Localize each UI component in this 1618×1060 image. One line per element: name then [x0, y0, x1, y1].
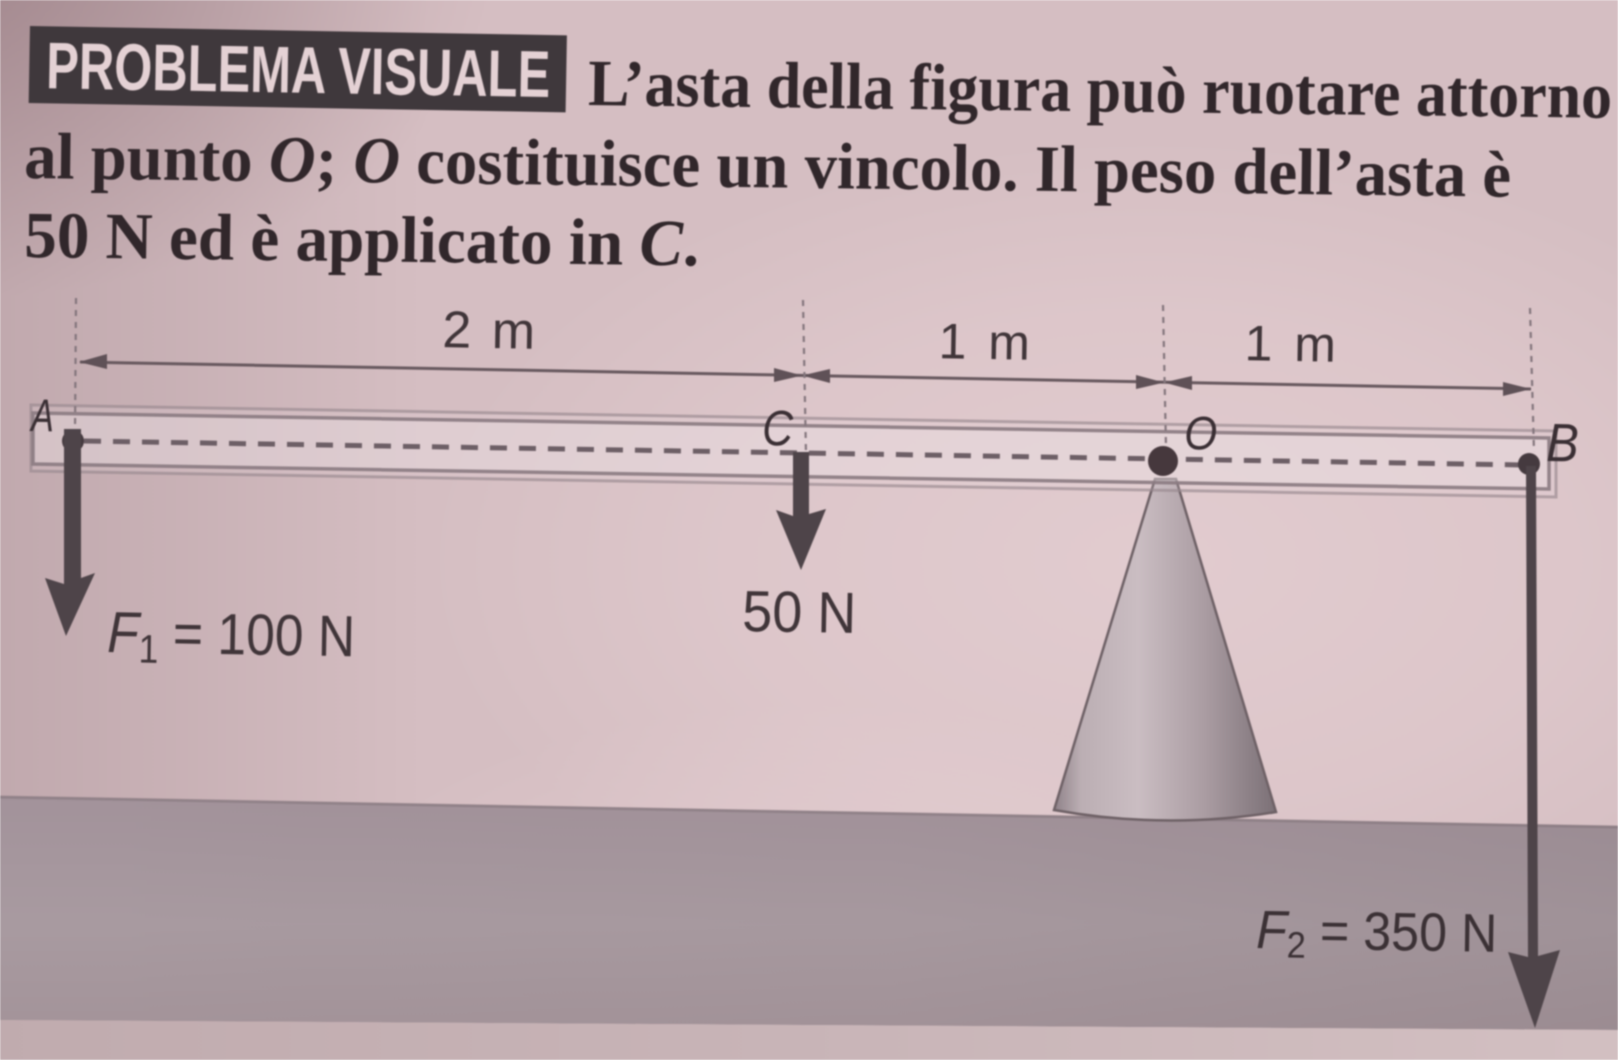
svg-text:1 m: 1 m	[1244, 315, 1340, 373]
svg-text:1 m: 1 m	[938, 313, 1034, 371]
svg-text:A: A	[29, 389, 54, 442]
svg-text:PROBLEMA VISUALE: PROBLEMA VISUALE	[46, 28, 551, 111]
svg-text:L’asta della figura può ruotar: L’asta della figura può ruotare attorno	[588, 47, 1613, 133]
svg-text:B: B	[1546, 412, 1579, 474]
svg-text:C: C	[762, 400, 794, 457]
svg-text:50 N: 50 N	[742, 578, 857, 645]
svg-text:2 m: 2 m	[442, 301, 539, 361]
svg-text:O: O	[1184, 408, 1218, 460]
svg-text:50 N ed è applicato in C.: 50 N ed è applicato in C.	[24, 199, 700, 280]
